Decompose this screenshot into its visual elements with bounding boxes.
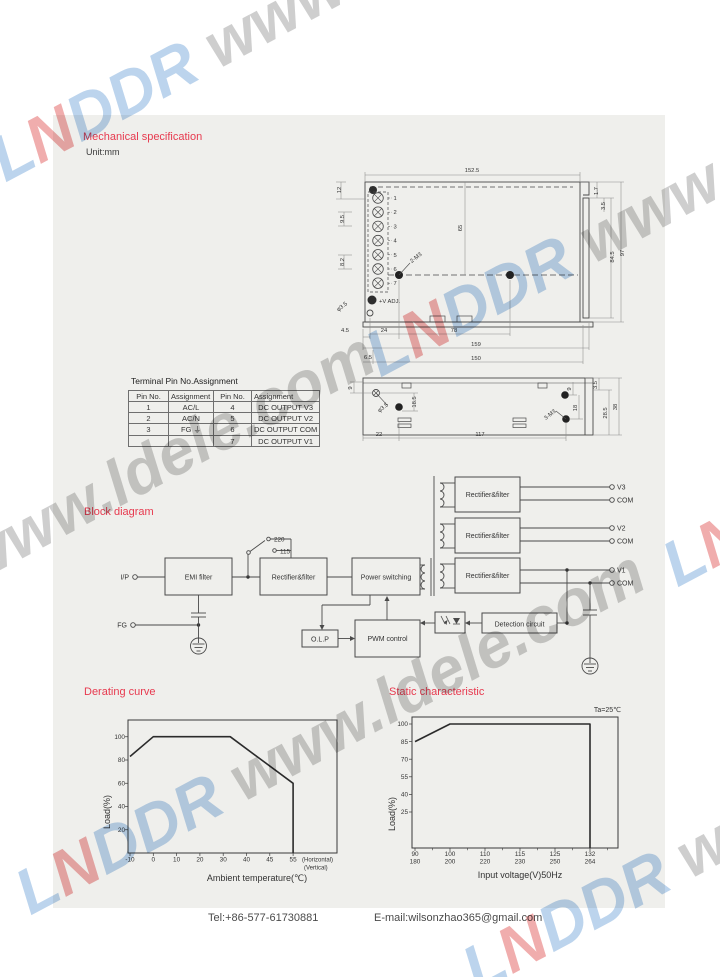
derating-curve-heading: Derating curve: [84, 686, 156, 698]
pin-cell: DC OUTPUT V1: [252, 436, 320, 447]
pin-number-label: 4: [394, 239, 398, 245]
x-tick-label: 110: [480, 851, 491, 858]
rectifier-filter-label: Rectifier&filter: [466, 573, 510, 580]
data-curve: [130, 737, 293, 853]
x-axis-title: Input voltage(V)50Hz: [478, 870, 563, 880]
v2-terminal: [610, 526, 615, 531]
pin-number-label: 5: [394, 253, 397, 259]
x-tick-label: 10: [173, 857, 181, 864]
mechanical-spec-heading: Mechanical specification: [83, 131, 202, 143]
dimension-label: 1.7: [594, 187, 600, 195]
table-row: 3FG ⏚6DC OUTPUT COM: [129, 424, 320, 436]
footer-tel: Tel:+86-577-61730881: [208, 912, 318, 924]
dimension-label: 8.2: [340, 258, 346, 266]
dimension-label: 9: [567, 387, 573, 390]
static-characteristic-chart: 2540557085100901001101151251321802002202…: [385, 700, 660, 890]
dimension-label: 9.5: [340, 215, 346, 223]
terminal-screws: 1234567: [373, 193, 398, 289]
dimension-label: 4.5: [341, 328, 349, 334]
watermark-segment: www.ldele.com: [176, 0, 632, 90]
dimension-label: 159: [471, 342, 481, 348]
y-tick-label: 100: [114, 734, 125, 741]
emi-filter-label: EMI filter: [185, 575, 213, 582]
m3-hole: [506, 271, 514, 279]
v1-label: V1: [617, 568, 626, 575]
switch-220-label: 220: [274, 537, 285, 544]
pin-number-label: 1: [394, 196, 397, 202]
dimension-label: 9: [348, 386, 354, 389]
vadj-screw: [368, 296, 377, 305]
block-diagram: EMI filter Rectifier&filter Power switch…: [95, 470, 665, 680]
watermark-segment: N: [685, 496, 720, 581]
detection-circuit-label: Detection circuit: [495, 622, 545, 629]
dimension-label: 6.5: [364, 355, 372, 361]
x-tick-label: 30: [220, 857, 228, 864]
block-boxes: [165, 477, 557, 657]
dimension-label: 3-M3: [543, 409, 557, 422]
dimension-label: 12: [337, 187, 343, 193]
pin-table-header: Pin No.: [129, 391, 169, 402]
dimension-label: +V ADJ.: [379, 299, 400, 305]
com-terminal: [610, 581, 615, 586]
x-tick-label: 200: [445, 859, 456, 866]
dimension-label: φ3.5: [377, 402, 390, 414]
dimension-labels: 152.5129.58.2652-M3+V ADJ.φ3.54.52478159…: [336, 168, 626, 438]
table-row: 2AC/N5DC OUTPUT V2: [129, 413, 320, 424]
earth-ground-icon: [582, 658, 598, 674]
com-terminal: [610, 498, 615, 503]
x-tick-label: 40: [243, 857, 251, 864]
rectifier-filter-label: Rectifier&filter: [466, 533, 510, 540]
optocoupler-icon: [441, 616, 460, 624]
earth-ground-icon: [191, 638, 207, 654]
com-label: COM: [617, 581, 634, 588]
x-tick-label: 90: [411, 851, 419, 858]
dimension-label: 2-M3: [409, 252, 423, 265]
pin-cell: 3: [129, 424, 169, 436]
y-tick-label: 70: [401, 756, 409, 763]
pin-cell: 2: [129, 413, 169, 424]
pin-table-header: Assignment: [252, 391, 320, 402]
fg-terminal: [131, 623, 136, 628]
dimension-label: 150: [471, 356, 481, 362]
data-curve: [415, 724, 590, 848]
transformer-icon: [420, 476, 455, 596]
x-tick-label: 132: [585, 851, 596, 858]
v2-label: V2: [617, 526, 626, 533]
pin-number-label: 6: [394, 267, 397, 273]
pin-number-label: 2: [394, 210, 397, 216]
dimension-label: 18: [573, 405, 579, 411]
x-axis-title: Ambient temperature(℃): [207, 873, 307, 883]
y-tick-label: 55: [401, 774, 409, 781]
pin-cell: 5: [214, 413, 252, 424]
plot-area: [412, 717, 618, 848]
pin-cell: 4: [214, 402, 252, 413]
y-tick-label: 40: [118, 804, 126, 811]
x-tick-label: 100: [445, 851, 456, 858]
y-tick-label: 40: [401, 792, 409, 799]
switch-115-label: 115: [280, 549, 291, 556]
derating-curve-chart: 20406080100-100102030404555(Horizontal)(…: [85, 700, 360, 890]
y-tick-label: 20: [118, 827, 126, 834]
mounting-hole: [367, 310, 373, 316]
pin-cell: 1: [129, 402, 169, 413]
pin-table-title: Terminal Pin No.Assignment: [131, 376, 238, 386]
dimension-label: 152.5: [465, 168, 480, 174]
x-tick-label: 55: [290, 857, 298, 864]
y-tick-label: 25: [401, 809, 409, 816]
x-tick-label: 125: [550, 851, 561, 858]
m3-hole: [561, 391, 569, 399]
y-tick-label: 60: [118, 780, 126, 787]
y-tick-label: 85: [401, 739, 409, 746]
rectifier-filter-label: Rectifier&filter: [466, 492, 510, 499]
v3-terminal: [610, 485, 615, 490]
optocoupler-box: [435, 612, 465, 633]
pin-cell: 6: [214, 424, 252, 436]
x-tick-label: 0: [152, 857, 156, 864]
dimension-label: 65: [458, 225, 464, 231]
pin-cell: FG ⏚: [169, 424, 214, 436]
side-view-outline: [363, 378, 593, 435]
com-label: COM: [617, 498, 634, 505]
cover-notch: [580, 182, 589, 195]
pin-cell: 7: [214, 436, 252, 447]
dimension-label: 117: [475, 432, 484, 438]
v3-label: V3: [617, 485, 626, 492]
x-tick-label: 180: [410, 859, 421, 866]
table-row: 1AC/L4DC OUTPUT V3: [129, 402, 320, 413]
block-diagram-heading: Block diagram: [84, 506, 154, 518]
pin-table-header: Pin No.: [214, 391, 252, 402]
ip-terminal: [133, 575, 138, 580]
unit-label: Unit:mm: [86, 147, 120, 157]
rectifier-filter-label: Rectifier&filter: [272, 575, 316, 582]
pin-cell: [129, 436, 169, 447]
pin-cell: DC OUTPUT COM: [252, 424, 320, 436]
fg-label: FG: [117, 623, 127, 630]
dimension-label: 28.5: [603, 407, 609, 418]
y-tick-label: 80: [118, 757, 126, 764]
x-axis-note: (Vertical): [304, 866, 328, 872]
dimension-label: 22: [376, 432, 382, 438]
dimension-lines: [336, 172, 624, 441]
watermark-segment: L: [0, 113, 46, 195]
dimension-label: 97: [620, 250, 626, 256]
top-view-outline: [363, 182, 593, 327]
mechanical-drawing: 1234567 152.5129.58.2652-M3+V ADJ.φ3.54.…: [330, 160, 660, 460]
dimension-label: 3.5: [593, 381, 599, 389]
pin-cell: AC/N: [169, 413, 214, 424]
dimension-label: 3.5: [601, 202, 607, 210]
ip-label: I/P: [120, 575, 129, 582]
x-tick-label: -10: [125, 857, 135, 864]
dimension-label: 18.5: [412, 396, 418, 407]
y-axis-title: Load(%): [387, 797, 397, 831]
pin-number-label: 7: [394, 281, 397, 287]
pin-cell: DC OUTPUT V2: [252, 413, 320, 424]
x-tick-label: 220: [480, 859, 491, 866]
datasheet-page: 1234567 152.5129.58.2652-M3+V ADJ.φ3.54.…: [0, 0, 720, 977]
y-tick-label: 100: [397, 721, 408, 728]
pin-table-header: Assignment: [169, 391, 214, 402]
pin-assignment-table: Pin No.AssignmentPin No.Assignment 1AC/L…: [128, 390, 320, 447]
footer-email: E-mail:wilsonzhao365@gmail.com: [374, 912, 542, 924]
dimension-label: 78: [451, 328, 457, 334]
pin-cell: AC/L: [169, 402, 214, 413]
x-tick-label: 20: [196, 857, 204, 864]
x-tick-label: 264: [585, 859, 596, 866]
static-characteristic-heading: Static characteristic: [389, 686, 484, 698]
pin-table-body: 1AC/L4DC OUTPUT V32AC/N5DC OUTPUT V23FG …: [129, 402, 320, 447]
table-row: 7DC OUTPUT V1: [129, 436, 320, 447]
y-axis-title: Load(%): [102, 795, 112, 829]
pwm-control-label: PWM control: [367, 636, 408, 643]
x-tick-label: 115: [515, 851, 526, 858]
pin-cell: DC OUTPUT V3: [252, 402, 320, 413]
dimension-label: 38: [613, 404, 619, 410]
pin-cell: [169, 436, 214, 447]
m3-hole: [395, 403, 403, 411]
power-switching-label: Power switching: [361, 575, 412, 582]
dimension-label: 24: [381, 328, 388, 334]
dimension-label: 84.5: [610, 251, 616, 262]
x-axis-note: (Horizontal): [302, 858, 333, 864]
com-label: COM: [617, 539, 634, 546]
pin-table-head: Pin No.AssignmentPin No.Assignment: [129, 391, 320, 402]
olp-label: O.L.P: [311, 637, 329, 644]
x-tick-label: 250: [550, 859, 561, 866]
v1-terminal: [610, 568, 615, 573]
x-tick-label: 45: [266, 857, 274, 864]
dimension-label: φ3.5: [336, 301, 349, 313]
pin-number-label: 3: [394, 224, 397, 230]
x-tick-label: 230: [515, 859, 526, 866]
plot-area: [128, 720, 337, 853]
temperature-annotation: Ta=25℃: [594, 707, 621, 714]
watermark-segment: L: [450, 923, 518, 977]
com-terminal: [610, 539, 615, 544]
